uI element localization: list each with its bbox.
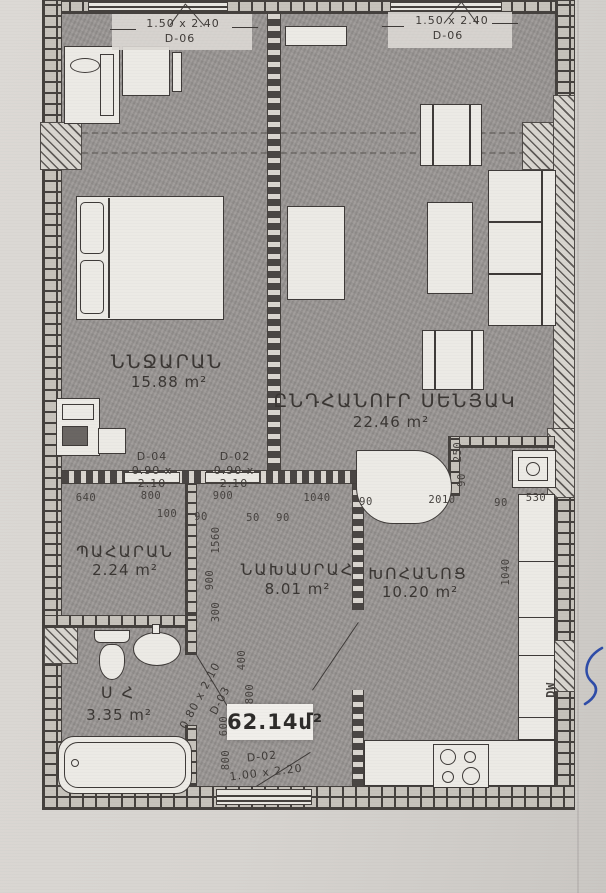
- room-name-bedroom: ՆՆՋԱՐԱՆ: [62, 352, 272, 372]
- window-bedroom-code: D-06: [140, 32, 220, 45]
- dim-h: 50: [243, 512, 263, 524]
- room-area-hallway: 8.01 m²: [235, 580, 360, 598]
- adjacent-structure-hatch: [553, 95, 575, 440]
- door-hallway-code: D-02: [215, 450, 255, 463]
- kitchen-sink-unit: [512, 450, 556, 488]
- dim-v: 800: [244, 679, 256, 709]
- pillow: [80, 202, 104, 254]
- partition-hall-kitchen-lower: [352, 690, 364, 786]
- room-name-living: ԸՆԴՀԱՆՈՒՐ ՍԵՆՅԱԿ: [270, 391, 520, 411]
- tv-stand: [287, 206, 345, 300]
- bathtub: [58, 736, 192, 794]
- sofa: [488, 170, 556, 326]
- door-closet-size: 0.90 x 2.10: [118, 464, 186, 490]
- dim-h: 90: [190, 511, 212, 523]
- room-name-hallway: ՆԱԽԱՍՐԱՀ: [235, 560, 360, 580]
- dim-h: 800: [134, 490, 168, 502]
- window-living-code: D-06: [408, 29, 488, 42]
- dim-h: 530: [518, 492, 554, 504]
- dim-h: 100: [152, 508, 182, 520]
- window-living-size: 1.50 x 2.40: [395, 14, 509, 27]
- burner: [464, 751, 476, 763]
- dim-v: 90: [456, 471, 468, 489]
- door-closet-code: D-04: [132, 450, 172, 463]
- dim-v: 250: [452, 438, 464, 466]
- dim-v: 1560: [210, 518, 222, 562]
- room-area-bedroom: 15.88 m²: [62, 373, 276, 391]
- dim-h: 900: [206, 490, 240, 502]
- burner: [462, 767, 480, 785]
- stool: [98, 428, 126, 454]
- total-area-badge: 62.14մ²: [227, 704, 313, 740]
- wall-bathroom-top: [42, 615, 197, 628]
- room-area-living: 22.46 m²: [270, 413, 512, 431]
- room-name-bathroom: Ս Հ: [88, 683, 148, 703]
- shaft-hatch: [40, 122, 82, 170]
- room-area-bathroom: 3.35 m²: [80, 706, 158, 724]
- pen-scribble: [580, 645, 606, 707]
- dim-v: 400: [236, 647, 248, 673]
- dim-h: 90: [355, 496, 377, 508]
- window-bedroom-size: 1.50 x 2.40: [118, 17, 248, 30]
- room-name-closet: ՊԱՀԱՐԱՆ: [62, 542, 188, 562]
- armchair: [422, 330, 484, 390]
- desk-panel: [172, 52, 182, 92]
- door-balcony-opening: [216, 789, 312, 805]
- room-area-kitchen: 10.20 m²: [360, 583, 480, 601]
- armchair: [420, 104, 482, 166]
- bed-headboard-line: [108, 198, 110, 318]
- dim-v: 600: [218, 713, 230, 739]
- room-area-closet: 2.24 m²: [62, 561, 188, 579]
- burner: [442, 771, 454, 783]
- door-hallway-size: 0.90 x 2.10: [200, 464, 268, 490]
- dim-h: 90: [490, 497, 512, 509]
- toilet-bowl: [99, 644, 125, 680]
- dim-v: 800: [220, 745, 232, 775]
- pillow: [80, 260, 104, 314]
- stove: [433, 744, 489, 788]
- vanity-mirror: [70, 58, 100, 73]
- dim-v: 300: [210, 599, 222, 625]
- wall-kitchen-top: [455, 436, 555, 448]
- toilet-tank: [94, 630, 130, 643]
- room-name-kitchen: ԽՈՀԱՆՈՑ: [360, 564, 476, 584]
- dim-v: 1040: [500, 552, 512, 592]
- sink-tap: [152, 624, 160, 634]
- burner: [440, 749, 456, 765]
- coffee-table: [427, 202, 473, 294]
- paper-crease: [577, 0, 579, 893]
- wardrobe-item: [62, 426, 88, 446]
- vanity-item: [100, 54, 114, 116]
- desk: [122, 46, 170, 96]
- round-table: [356, 450, 452, 524]
- dim-v: 900: [204, 565, 216, 595]
- window-bedroom: [88, 2, 228, 13]
- shelf: [285, 26, 347, 46]
- dishwasher-label: DW: [545, 675, 557, 705]
- dim-h: 640: [70, 492, 102, 504]
- dim-h: 1040: [298, 492, 336, 504]
- floor-plan-scan: DW 1.50 x 2.40 D-06 1.50 x 2.40 D-06 D-0…: [0, 0, 606, 893]
- wardrobe-shelf: [62, 404, 94, 420]
- dim-h: 2010: [420, 494, 464, 506]
- dim-h: 90: [272, 512, 294, 524]
- bath-sink: [133, 632, 181, 666]
- wall-bathroom-hall-upper: [185, 615, 197, 655]
